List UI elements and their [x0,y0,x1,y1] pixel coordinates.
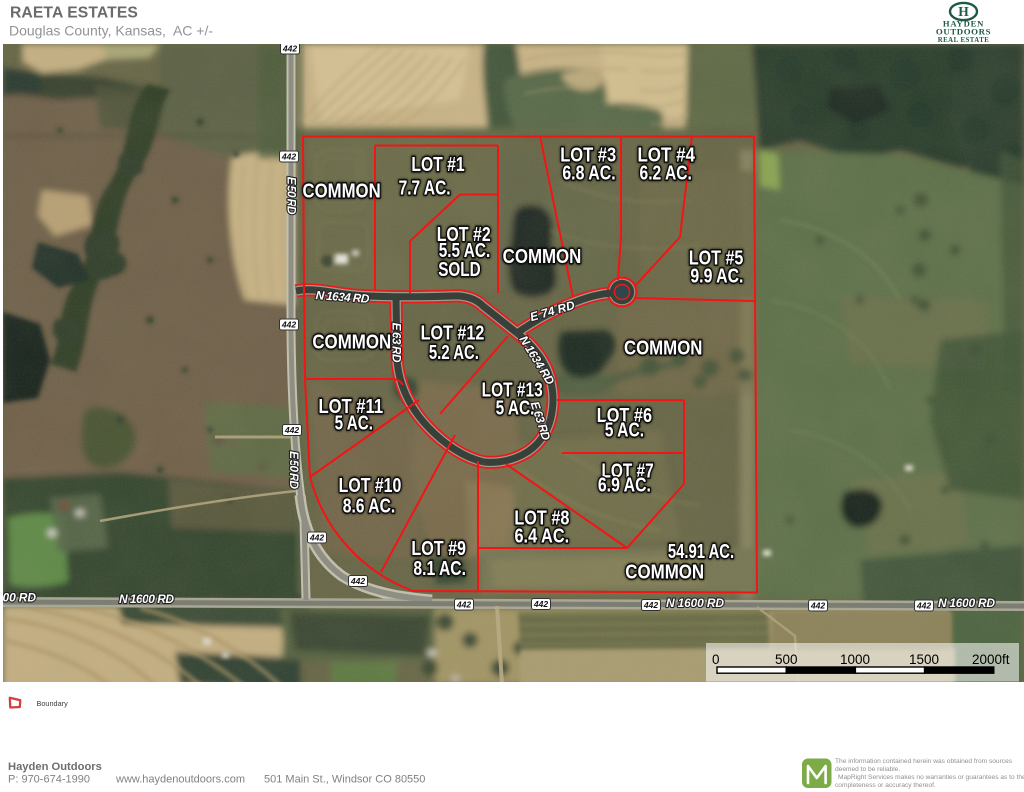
svg-text:600 RD: 600 RD [0,591,36,605]
svg-text:500: 500 [775,652,798,667]
svg-text:COMMON: COMMON [303,181,381,203]
svg-text:N 1600 RD: N 1600 RD [666,596,724,610]
svg-text:RAETA ESTATES: RAETA ESTATES [10,5,138,22]
svg-text:LOT #10: LOT #10 [339,475,402,497]
svg-text:Hayden Outdoors: Hayden Outdoors [8,761,102,773]
svg-text:N 1600 RD: N 1600 RD [119,592,174,606]
svg-text:MapRight Services makes no war: MapRight Services makes no warranties or… [838,774,1024,781]
svg-text:REAL ESTATE: REAL ESTATE [938,37,990,44]
svg-text:442: 442 [916,601,931,611]
svg-text:Boundary: Boundary [37,699,69,708]
svg-text:501 Main St., Windsor CO 80550: 501 Main St., Windsor CO 80550 [264,774,425,786]
svg-text:442: 442 [643,600,658,610]
svg-text:2000ft: 2000ft [972,652,1010,667]
svg-text:www.haydenoutdoors.com: www.haydenoutdoors.com [115,774,245,786]
svg-text:deemed to be reliable.: deemed to be reliable. [835,766,900,773]
svg-text:P: 970-674-1990: P: 970-674-1990 [8,774,90,786]
svg-text:6.9 AC.: 6.9 AC. [598,475,651,497]
svg-text:8.1 AC.: 8.1 AC. [413,558,466,580]
svg-text:442: 442 [533,599,548,609]
svg-text:H: H [958,4,969,19]
svg-text:The information contained here: The information contained herein was obt… [835,758,1013,765]
svg-text:SOLD: SOLD [438,259,480,281]
svg-text:6.4 AC.: 6.4 AC. [515,526,570,548]
svg-text:E 63 RD: E 63 RD [390,323,404,363]
svg-text:5 AC.: 5 AC. [335,412,373,434]
svg-text:5 AC.: 5 AC. [496,397,535,419]
svg-text:LOT #9: LOT #9 [411,538,466,560]
svg-text:OUTDOORS: OUTDOORS [936,27,991,37]
svg-text:9.9 AC.: 9.9 AC. [690,266,743,288]
svg-text:E 50 RD: E 50 RD [285,177,299,215]
svg-text:COMMON: COMMON [503,246,582,268]
svg-text:COMMON: COMMON [625,561,704,583]
svg-text:E 50 RD: E 50 RD [287,451,301,489]
svg-text:LOT #1: LOT #1 [411,154,464,176]
svg-text:8.6 AC.: 8.6 AC. [343,495,396,517]
svg-text:442: 442 [282,44,297,54]
svg-text:442: 442 [309,533,324,543]
svg-text:442: 442 [281,152,296,162]
svg-text:5 AC.: 5 AC. [605,419,644,441]
svg-text:0: 0 [712,652,720,667]
svg-text:5.2 AC.: 5.2 AC. [429,342,479,364]
svg-text:N 1600 RD: N 1600 RD [938,596,995,610]
svg-text:442: 442 [810,601,825,611]
svg-text:Douglas County, Kansas, AC +/: Douglas County, Kansas, AC +/- [9,23,213,39]
svg-text:6.2 AC.: 6.2 AC. [640,163,692,185]
svg-text:1000: 1000 [840,652,870,667]
svg-text:COMMON: COMMON [624,338,703,360]
svg-text:COMMON: COMMON [312,332,391,354]
svg-text:1500: 1500 [909,652,939,667]
svg-text:7.7 AC.: 7.7 AC. [399,178,451,200]
svg-text:completeness or accuracy there: completeness or accuracy thereof. [835,782,936,789]
svg-text:442: 442 [281,320,296,330]
svg-text:442: 442 [350,576,365,586]
svg-text:442: 442 [456,600,471,610]
svg-text:54.91 AC.: 54.91 AC. [668,541,734,563]
svg-text:6.8 AC.: 6.8 AC. [562,163,615,185]
svg-text:442: 442 [284,425,299,435]
